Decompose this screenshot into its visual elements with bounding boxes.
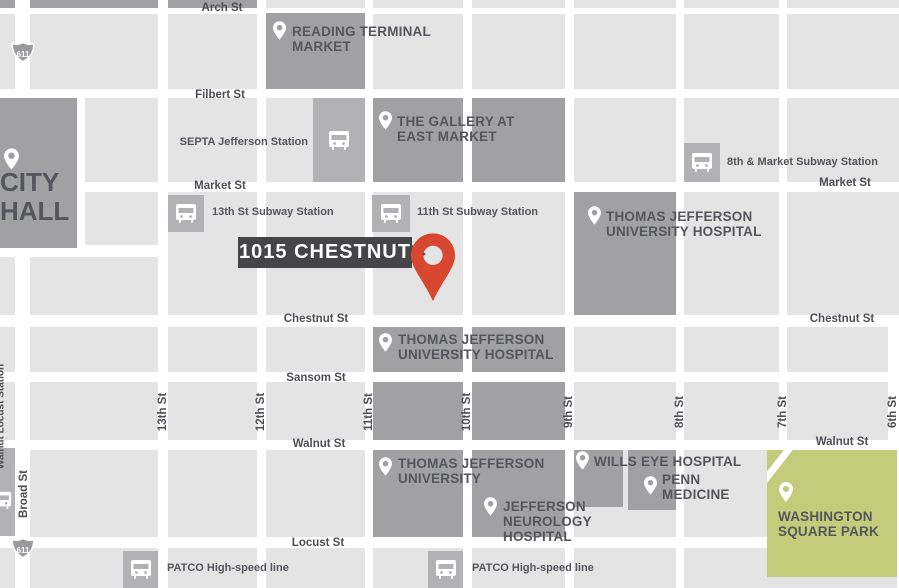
city-block — [574, 98, 676, 182]
landmark-label-tju: THOMAS JEFFERSON UNIVERSITY — [398, 456, 568, 486]
city-block — [472, 14, 565, 89]
landmark-label-reading-terminal: READING TERMINAL MARKET — [292, 24, 447, 54]
address-callout-label: 1015 CHESTNUT — [239, 241, 411, 264]
city-block — [168, 14, 257, 89]
city-block — [266, 382, 365, 440]
street-label-8th: 8th St — [674, 387, 686, 437]
city-block — [684, 382, 779, 440]
city-block — [684, 0, 779, 8]
route-611-shield-icon: 611 — [9, 535, 37, 569]
station-label-walnut-locust: Walnut Locust Station — [0, 357, 7, 477]
block-jefferson-campus — [373, 382, 463, 440]
street-label-market-left: Market St — [175, 180, 265, 192]
city-block — [787, 327, 888, 372]
location-pin-icon — [379, 333, 392, 357]
city-block — [0, 257, 15, 315]
street-label-sansom: Sansom St — [271, 372, 361, 384]
city-block — [266, 450, 365, 537]
street-label-filbert: Filbert St — [175, 89, 265, 101]
city-block — [85, 98, 158, 182]
street-label-arch: Arch St — [177, 2, 267, 14]
landmark-label-washington-square-park: WASHINGTON SQUARE PARK — [778, 509, 897, 539]
bus-icon — [0, 489, 13, 516]
location-pin-icon — [379, 111, 392, 135]
city-block — [168, 382, 257, 440]
street-label-chestnut-left: Chestnut St — [271, 313, 361, 325]
city-block — [787, 98, 899, 182]
city-block — [30, 382, 158, 440]
landmark-label-gallery: THE GALLERY AT EAST MARKET — [397, 114, 532, 144]
city-block — [85, 192, 158, 245]
street-label-11th: 11th St — [363, 387, 375, 437]
city-block — [30, 0, 158, 8]
location-pin-icon — [576, 451, 589, 475]
location-pin-icon — [588, 206, 601, 230]
city-block — [30, 450, 158, 537]
bus-icon — [327, 128, 351, 157]
landmark-label-tjuh-chestnut: THOMAS JEFFERSON UNIVERSITY HOSPITAL — [398, 332, 576, 362]
shield-number: 611 — [17, 50, 30, 59]
map-canvas: WASHINGTON SQUARE PARK Arch St Filbert S… — [0, 0, 899, 588]
city-block — [373, 0, 463, 8]
landmark-label-wills-eye: WILLS EYE HOSPITAL — [594, 454, 741, 469]
city-block — [0, 0, 15, 8]
location-pin-icon — [379, 457, 392, 481]
landmark-label-tjuh-market: THOMAS JEFFERSON UNIVERSITY HOSPITAL — [606, 209, 776, 239]
street-label-6th: 6th St — [887, 387, 899, 437]
station-label-11th-subway: 11th St Subway Station — [417, 206, 538, 218]
street-label-walnut-right: Walnut St — [797, 436, 887, 448]
city-block — [787, 0, 899, 8]
city-block — [767, 577, 897, 588]
landmark-label-jefferson-neurology: JEFFERSON NEUROLOGY HOSPITAL — [503, 499, 618, 544]
city-block — [787, 192, 899, 315]
city-block — [574, 14, 676, 89]
city-block — [168, 327, 257, 372]
street-label-broad: Broad St — [18, 464, 30, 524]
landmark-label-city-hall: CITY HALL — [0, 168, 80, 226]
landmark-label-penn-medicine: PENN MEDICINE — [662, 472, 762, 502]
location-pin-icon — [273, 21, 286, 45]
street-label-9th: 9th St — [563, 387, 575, 437]
city-block — [574, 327, 676, 372]
street-label-12th: 12th St — [255, 387, 267, 437]
city-block — [266, 0, 365, 8]
city-block — [574, 382, 676, 440]
station-label-septa-jefferson: SEPTA Jefferson Station — [170, 136, 308, 148]
city-block — [30, 257, 158, 315]
station-label-patco-east: PATCO High-speed line — [472, 562, 594, 574]
block-jefferson-campus — [472, 382, 565, 440]
location-pin-icon — [4, 148, 19, 175]
bus-icon — [690, 150, 714, 179]
station-label-8th-market: 8th & Market Subway Station — [727, 156, 878, 168]
bus-icon — [379, 201, 403, 230]
city-block — [266, 327, 365, 372]
bus-icon — [434, 557, 458, 586]
city-block — [168, 450, 257, 537]
street-label-walnut-left: Walnut St — [274, 438, 364, 450]
city-block — [684, 548, 767, 588]
bus-icon — [174, 201, 198, 230]
shield-number: 611 — [17, 546, 30, 555]
location-pin-icon — [484, 497, 497, 521]
address-callout[interactable]: 1015 CHESTNUT — [238, 237, 412, 268]
city-block — [684, 327, 779, 372]
city-block — [787, 14, 899, 89]
city-block — [472, 0, 565, 8]
street-label-chestnut-right: Chestnut St — [797, 313, 887, 325]
station-label-patco-west: PATCO High-speed line — [167, 562, 289, 574]
location-pin-icon — [779, 482, 793, 507]
city-block — [30, 14, 158, 89]
city-block — [30, 327, 158, 372]
bus-icon — [129, 557, 153, 586]
location-pin-icon — [644, 476, 657, 500]
street-label-locust: Locust St — [273, 537, 363, 549]
street-label-7th: 7th St — [777, 387, 789, 437]
station-label-13th-subway: 13th St Subway Station — [212, 206, 334, 218]
washington-square-park: WASHINGTON SQUARE PARK — [767, 450, 897, 577]
city-block — [787, 382, 888, 440]
street-label-13th: 13th St — [157, 387, 169, 437]
city-block — [684, 14, 779, 89]
route-611-shield-icon: 611 — [9, 39, 37, 73]
property-location-pin-icon[interactable] — [411, 233, 455, 312]
street-label-market-right: Market St — [800, 177, 890, 189]
city-block — [574, 0, 676, 8]
street-label-10th: 10th St — [461, 387, 473, 437]
